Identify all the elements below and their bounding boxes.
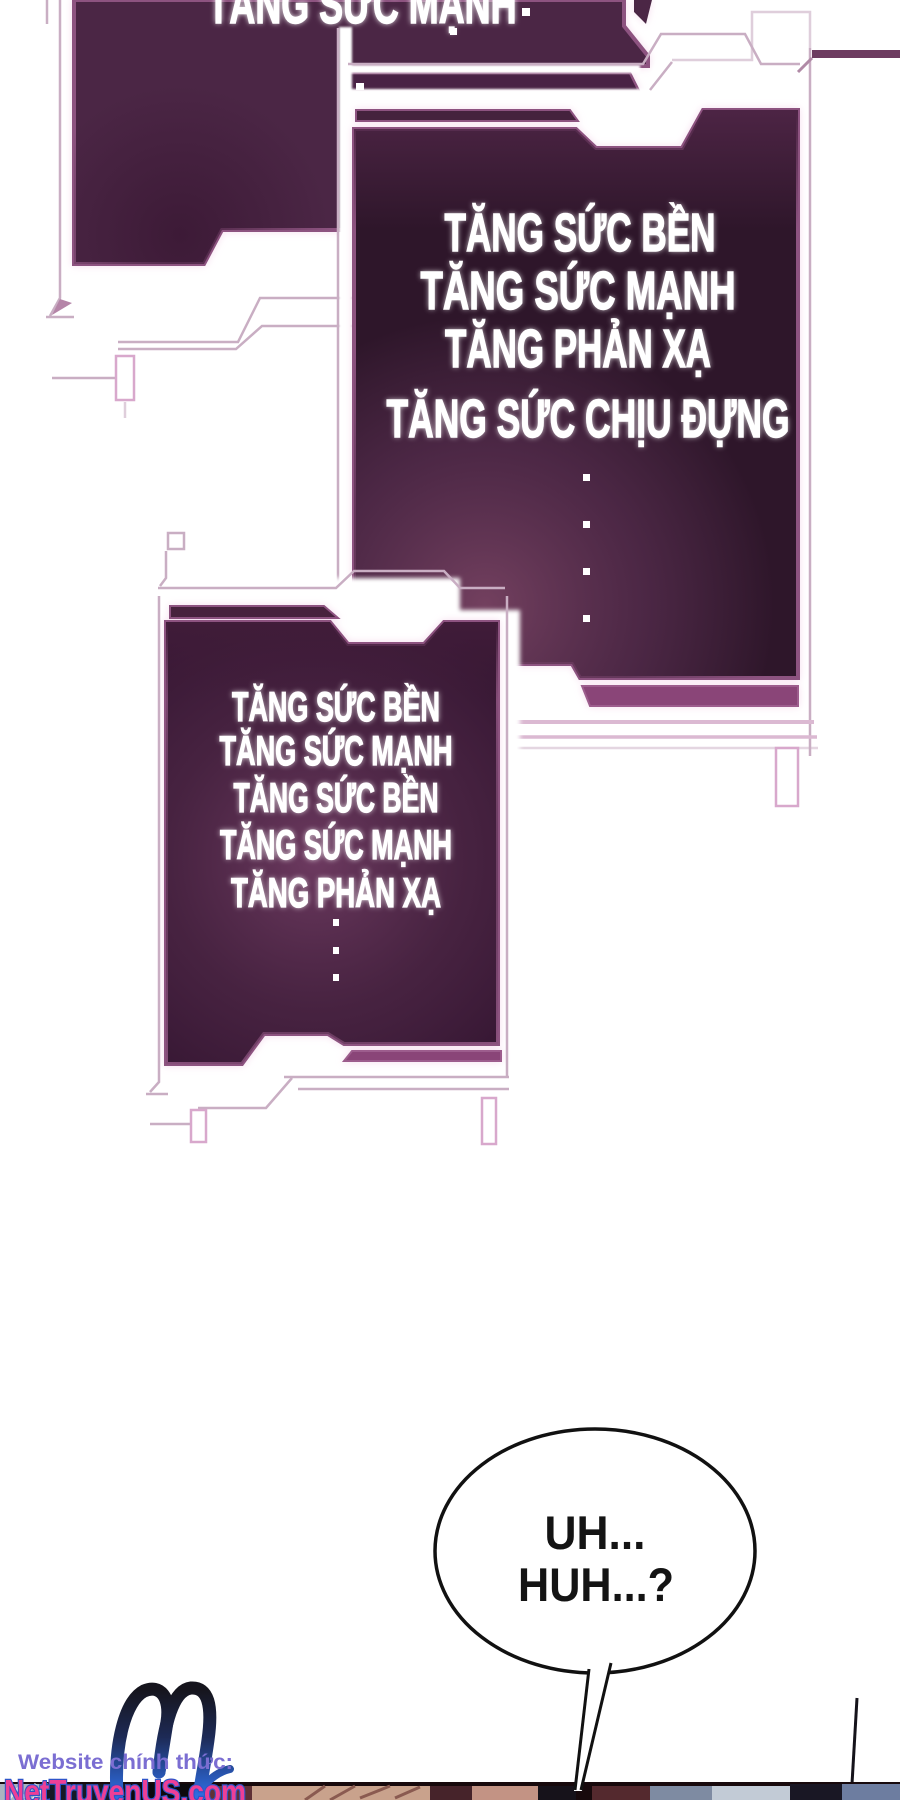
svg-text:TĂNG PHẢN XẠ: TĂNG PHẢN XẠ [445, 319, 711, 379]
svg-text:TĂNG SỨC BỀN: TĂNG SỨC BỀN [234, 773, 439, 821]
svg-text:TĂNG SỨC MẠNH: TĂNG SỨC MẠNH [220, 726, 453, 774]
svg-text:TĂNG SỨC MẠNH: TĂNG SỨC MẠNH [220, 820, 452, 868]
svg-text:HUH...?: HUH...? [518, 1558, 674, 1611]
svg-text:TĂNG SỨC MẠNH: TĂNG SỨC MẠNH [208, 0, 517, 35]
svg-text:Website chính thức:: Website chính thức: [18, 1751, 233, 1774]
svg-text:TĂNG SỨC BỀN: TĂNG SỨC BỀN [232, 682, 440, 730]
svg-text:TĂNG SỨC BỀN: TĂNG SỨC BỀN [445, 203, 716, 263]
svg-text:NetTruyenUS.com: NetTruyenUS.com [4, 1773, 246, 1800]
svg-text:TĂNG SỨC CHỊU ĐỰNG: TĂNG SỨC CHỊU ĐỰNG [387, 389, 790, 449]
svg-text:TĂNG PHẢN XẠ: TĂNG PHẢN XẠ [231, 868, 441, 916]
svg-text:UH...: UH... [545, 1506, 646, 1559]
svg-text:TĂNG SỨC MẠNH: TĂNG SỨC MẠNH [421, 261, 736, 321]
